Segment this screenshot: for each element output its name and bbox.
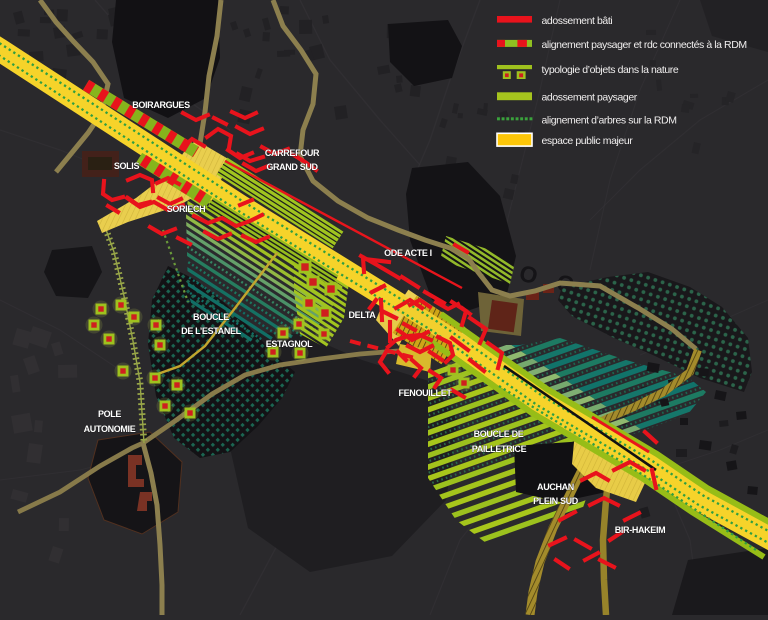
svg-text:typologie d’objets dans la nat: typologie d’objets dans la nature [542,64,679,76]
svg-text:espace public majeur: espace public majeur [542,135,634,147]
svg-text:alignement d’arbres sur la RDM: alignement d’arbres sur la RDM [542,115,677,127]
svg-text:FENOUILLET: FENOUILLET [399,388,453,398]
svg-text:DELTA: DELTA [349,310,377,320]
svg-text:adossement paysager: adossement paysager [542,92,638,104]
svg-text:adossement bâti: adossement bâti [542,15,613,27]
svg-text:CARREFOUR: CARREFOUR [265,148,320,158]
svg-text:alignement paysager et rdc con: alignement paysager et rdc connectés à l… [542,39,747,51]
svg-text:AUCHAN: AUCHAN [537,482,574,492]
svg-text:BIR-HAKEIM: BIR-HAKEIM [615,525,666,535]
svg-text:SORIECH: SORIECH [167,204,206,214]
svg-text:BOIRARGUES: BOIRARGUES [132,100,190,110]
svg-text:DE L’ESTANEL: DE L’ESTANEL [181,326,241,336]
svg-text:BOUCLE DE: BOUCLE DE [474,429,524,439]
svg-text:ODE ACTE I: ODE ACTE I [384,248,432,258]
svg-text:SOLIS: SOLIS [114,161,140,171]
svg-text:BOUCLE: BOUCLE [193,312,229,322]
svg-text:GRAND SUD: GRAND SUD [266,162,318,172]
svg-text:AUTONOMIE: AUTONOMIE [84,424,136,434]
svg-text:POLE: POLE [98,409,121,419]
svg-text:ESTAGNOL: ESTAGNOL [266,339,313,349]
svg-text:PAILLETRICE: PAILLETRICE [472,444,527,454]
svg-text:PLEIN SUD: PLEIN SUD [533,496,579,506]
